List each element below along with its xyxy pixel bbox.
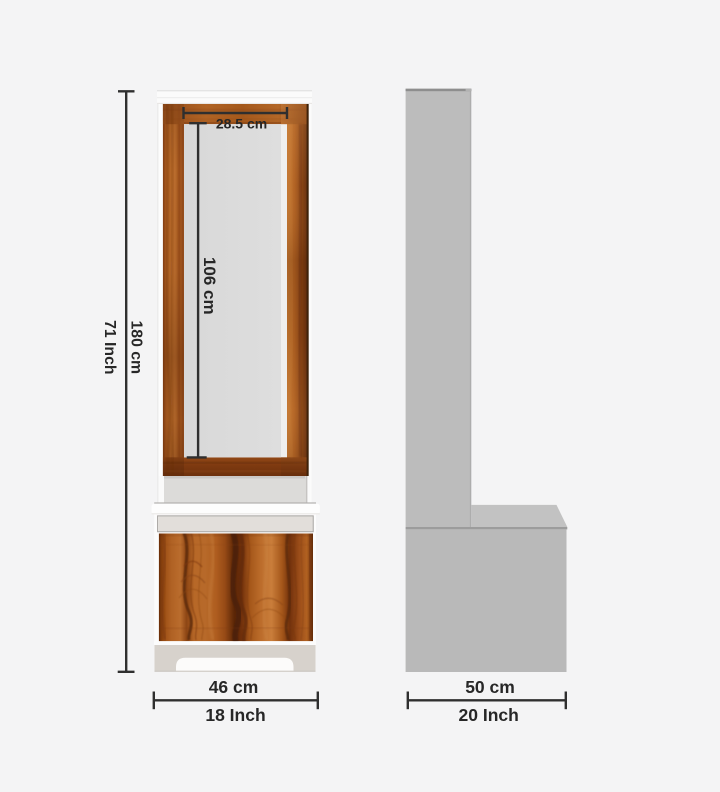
svg-text:50 cm: 50 cm [465,677,515,697]
svg-text:180 cm: 180 cm [128,321,145,375]
svg-text:106 cm: 106 cm [200,257,219,315]
svg-text:46 cm: 46 cm [209,677,259,697]
svg-text:71 Inch: 71 Inch [101,320,118,374]
svg-text:28.5 cm: 28.5 cm [216,116,267,132]
svg-text:20 Inch: 20 Inch [459,705,519,725]
svg-text:18 Inch: 18 Inch [205,705,265,725]
